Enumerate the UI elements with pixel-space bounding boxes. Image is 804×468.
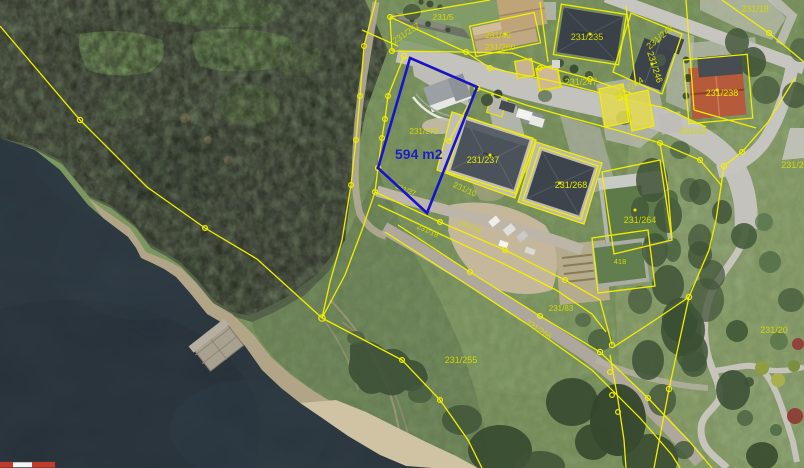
svg-text:231/247: 231/247 [565, 77, 598, 87]
svg-text:231/238: 231/238 [706, 88, 739, 98]
svg-text:231/83: 231/83 [549, 304, 574, 313]
svg-text:418: 418 [614, 257, 627, 266]
svg-text:231/260: 231/260 [485, 42, 516, 52]
svg-text:231/268: 231/268 [555, 180, 588, 190]
svg-text:231/40: 231/40 [485, 30, 511, 40]
svg-text:231/264: 231/264 [624, 215, 657, 225]
svg-text:231/5: 231/5 [432, 12, 454, 22]
svg-text:594 m2: 594 m2 [395, 146, 443, 162]
svg-text:231/272: 231/272 [410, 127, 439, 136]
svg-text:231/255: 231/255 [445, 355, 478, 365]
svg-text:231/20: 231/20 [760, 325, 788, 335]
svg-text:231/43: 231/43 [679, 126, 707, 136]
svg-text:231/20: 231/20 [781, 160, 804, 170]
svg-text:231/235: 231/235 [571, 32, 604, 42]
svg-text:231/18: 231/18 [741, 4, 769, 14]
svg-text:231/237: 231/237 [467, 155, 500, 165]
